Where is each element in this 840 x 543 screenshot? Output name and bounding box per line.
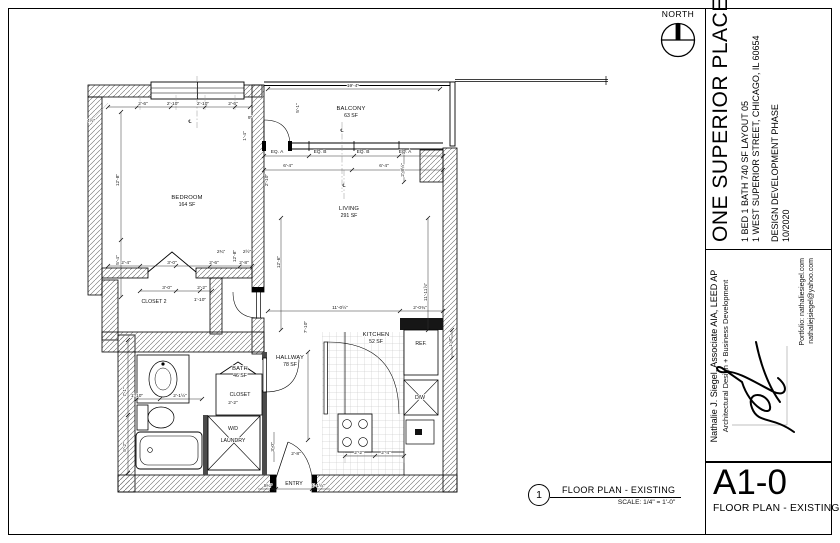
svg-text:℄: ℄ xyxy=(188,119,192,125)
refrigerator xyxy=(404,330,438,375)
svg-text:1'-8": 1'-8" xyxy=(448,337,454,347)
room-label-hallway: HALLWAY xyxy=(276,355,304,361)
project-date: 10/2020 xyxy=(781,8,792,242)
project-phase: DESIGN DEVELOPMENT PHASE xyxy=(770,8,781,242)
project-address: 1 WEST SUPERIOR STREET, CHICAGO, IL 6065… xyxy=(751,8,762,242)
bath-fixtures xyxy=(136,355,202,469)
svg-text:11'-0½": 11'-0½" xyxy=(332,304,348,311)
room-area-bedroom: 164 SF xyxy=(179,202,196,208)
svg-text:2'-1½": 2'-1½" xyxy=(173,392,187,399)
room-label-living: LIVING xyxy=(339,206,359,212)
svg-text:2'-6": 2'-6" xyxy=(209,260,219,266)
signature-stroke xyxy=(717,342,794,432)
view-title: 1 FLOOR PLAN - EXISTING SCALE: 1/4" = 1'… xyxy=(528,483,681,506)
svg-text:2'-8": 2'-8" xyxy=(291,451,301,457)
view-scale-label: SCALE: 1/4" = 1'-0" xyxy=(550,498,681,506)
room-label-balcony: BALCONY xyxy=(336,106,365,112)
svg-text:EQ. B: EQ. B xyxy=(314,149,327,155)
svg-text:2'-6": 2'-6" xyxy=(228,101,238,107)
room-area-kitchen: 52 SF xyxy=(369,339,383,345)
svg-text:EQ. A: EQ. A xyxy=(399,149,412,155)
svg-text:2'-10": 2'-10" xyxy=(167,101,180,107)
svg-text:9": 9" xyxy=(248,115,253,121)
room-area-hallway: 78 SF xyxy=(283,362,297,368)
north-symbol-icon xyxy=(655,19,701,61)
svg-text:19'-4": 19'-4" xyxy=(347,83,360,89)
room-label-laundry: LAUNDRY xyxy=(221,438,246,444)
svg-text:12'-6": 12'-6" xyxy=(276,256,282,269)
svg-text:12'-8": 12'-8" xyxy=(115,174,121,187)
title-block-project-section: ONE SUPERIOR PLACE 1 BED 1 BATH 740 SF L… xyxy=(706,8,832,250)
svg-text:7'-1": 7'-1" xyxy=(122,387,128,397)
architect-portfolio: Portfolio: nathaliesiegel.com xyxy=(798,258,807,346)
svg-text:2¾": 2¾" xyxy=(217,249,226,255)
balcony-door xyxy=(264,120,290,146)
svg-text:1'-10": 1'-10" xyxy=(194,297,207,303)
stove xyxy=(338,414,372,452)
svg-text:8¼": 8¼" xyxy=(264,483,273,489)
svg-text:2½": 2½" xyxy=(243,248,252,255)
toilet xyxy=(137,405,174,430)
svg-text:2'-2": 2'-2" xyxy=(354,450,364,456)
svg-text:7'-10": 7'-10" xyxy=(303,321,309,334)
appliance-label-ref: REF. xyxy=(415,341,426,347)
svg-text:2'-2": 2'-2" xyxy=(228,400,238,406)
drawing-sheet: NORTH xyxy=(0,0,840,543)
svg-text:6'-4": 6'-4" xyxy=(283,163,293,169)
svg-text:2'-4": 2'-4" xyxy=(381,450,391,456)
room-label-entry: ENTRY xyxy=(285,481,303,487)
project-subtitle-layout: 1 BED 1 BATH 740 SF LAYOUT 05 xyxy=(740,8,751,242)
sheet-name: FLOOR PLAN - EXISTING xyxy=(706,502,832,514)
svg-text:1'-10": 1'-10" xyxy=(131,393,144,399)
svg-text:℄: ℄ xyxy=(340,128,344,134)
svg-text:3'-0": 3'-0" xyxy=(162,285,172,291)
project-title: ONE SUPERIOR PLACE xyxy=(706,8,733,250)
kitchen-north-wall xyxy=(400,318,443,330)
svg-text:2'-4": 2'-4" xyxy=(121,260,131,266)
appliance-label-dw: D/W xyxy=(415,395,425,401)
kitchen-sink xyxy=(406,420,434,444)
room-label-closet2: CLOSET 2 xyxy=(142,299,167,305)
room-label-wd: W/D xyxy=(228,426,238,432)
svg-text:5'-1": 5'-1" xyxy=(295,103,301,113)
svg-text:2'-2": 2'-2" xyxy=(197,285,207,291)
bedroom-window xyxy=(151,82,244,99)
bedroom-door xyxy=(233,292,261,318)
svg-text:11'-11⅞": 11'-11⅞" xyxy=(423,283,429,301)
svg-text:2'-8½": 2'-8½" xyxy=(399,163,406,177)
svg-text:5'-4": 5'-4" xyxy=(115,255,121,265)
svg-text:3'-0": 3'-0" xyxy=(270,442,276,452)
view-title-label: FLOOR PLAN - EXISTING xyxy=(550,483,681,498)
svg-text:2'-6": 2'-6" xyxy=(138,101,148,107)
svg-text:2'-0¾": 2'-0¾" xyxy=(413,305,427,311)
room-label-bath: BATH xyxy=(232,366,248,372)
svg-text:2'-10": 2'-10" xyxy=(264,174,270,187)
title-block-architect-section: Nathalie J. Siegel, Associate AIA, LEED … xyxy=(706,250,832,462)
svg-text:2'-10": 2'-10" xyxy=(197,101,210,107)
svg-text:EQ. A: EQ. A xyxy=(271,149,284,155)
svg-text:5'-2": 5'-2" xyxy=(122,442,128,452)
view-number-bubble: 1 xyxy=(528,484,550,506)
sheet-number: A1-0 xyxy=(706,462,832,502)
svg-text:6'-4": 6'-4" xyxy=(379,163,389,169)
north-label: NORTH xyxy=(655,9,701,19)
architect-email: nathaliejsiegel@yahoo.com xyxy=(807,258,816,346)
floor-plan-drawing: BEDROOM 164 SF BALCONY 63 SF LIVING 291 … xyxy=(82,58,612,508)
svg-text:EQ. B: EQ. B xyxy=(357,149,370,155)
svg-text:2'-8": 2'-8" xyxy=(239,260,249,266)
title-block-sheet-section: A1-0 FLOOR PLAN - EXISTING xyxy=(706,462,832,535)
svg-text:12'-8": 12'-8" xyxy=(232,250,238,263)
room-label-bedroom: BEDROOM xyxy=(171,195,202,201)
entry-door xyxy=(276,442,312,478)
room-area-living: 291 SF xyxy=(341,213,358,219)
north-arrow: NORTH xyxy=(655,9,701,66)
room-area-balcony: 63 SF xyxy=(344,113,358,119)
room-area-bath: 46 SF xyxy=(233,373,247,379)
svg-text:℄: ℄ xyxy=(342,183,346,189)
svg-text:3'-0": 3'-0" xyxy=(167,260,177,266)
room-label-closet: CLOSET xyxy=(230,392,252,398)
bathtub xyxy=(136,432,202,469)
svg-text:4½": 4½" xyxy=(87,117,96,124)
balcony-rail xyxy=(264,76,608,146)
svg-text:1'-4": 1'-4" xyxy=(242,131,248,141)
architect-signature xyxy=(710,324,798,446)
room-label-kitchen: KITCHEN xyxy=(363,332,390,338)
svg-text:1'-1½": 1'-1½" xyxy=(311,482,325,489)
